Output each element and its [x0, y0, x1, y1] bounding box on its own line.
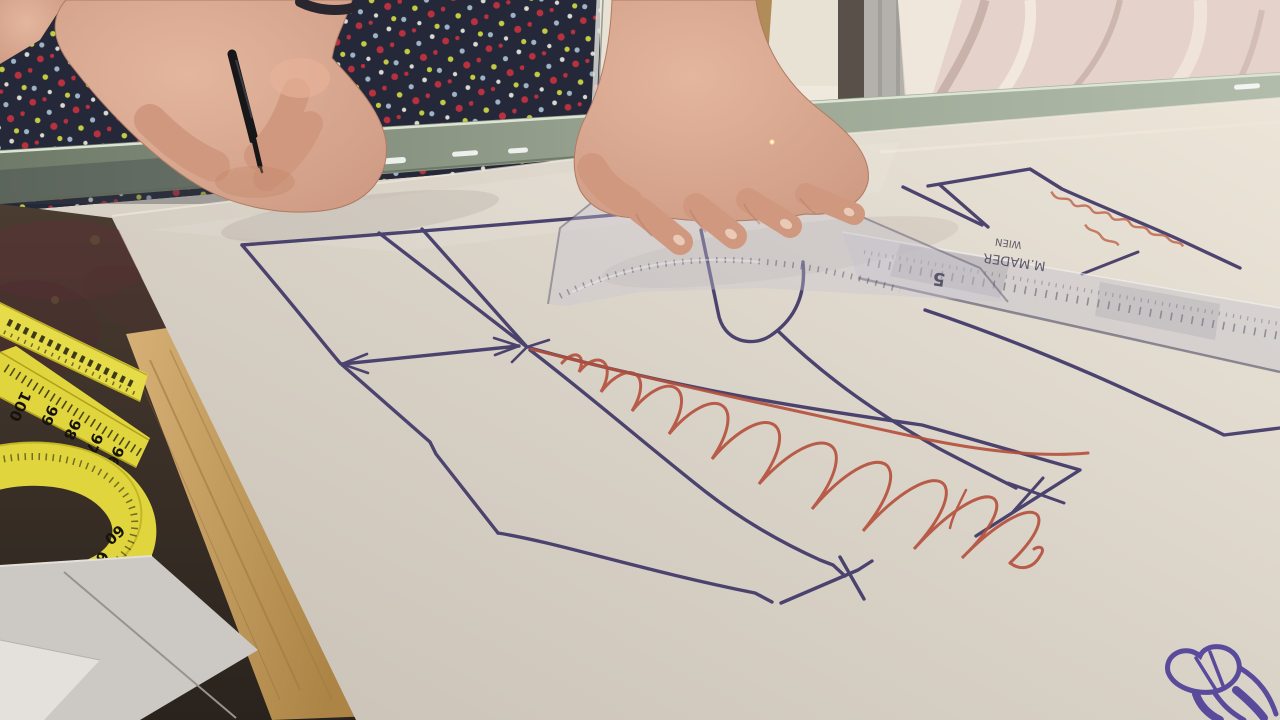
photograph-sewing-pattern-drafting: 100 99 98 97 96 64 63 62 61 60	[0, 0, 1280, 720]
